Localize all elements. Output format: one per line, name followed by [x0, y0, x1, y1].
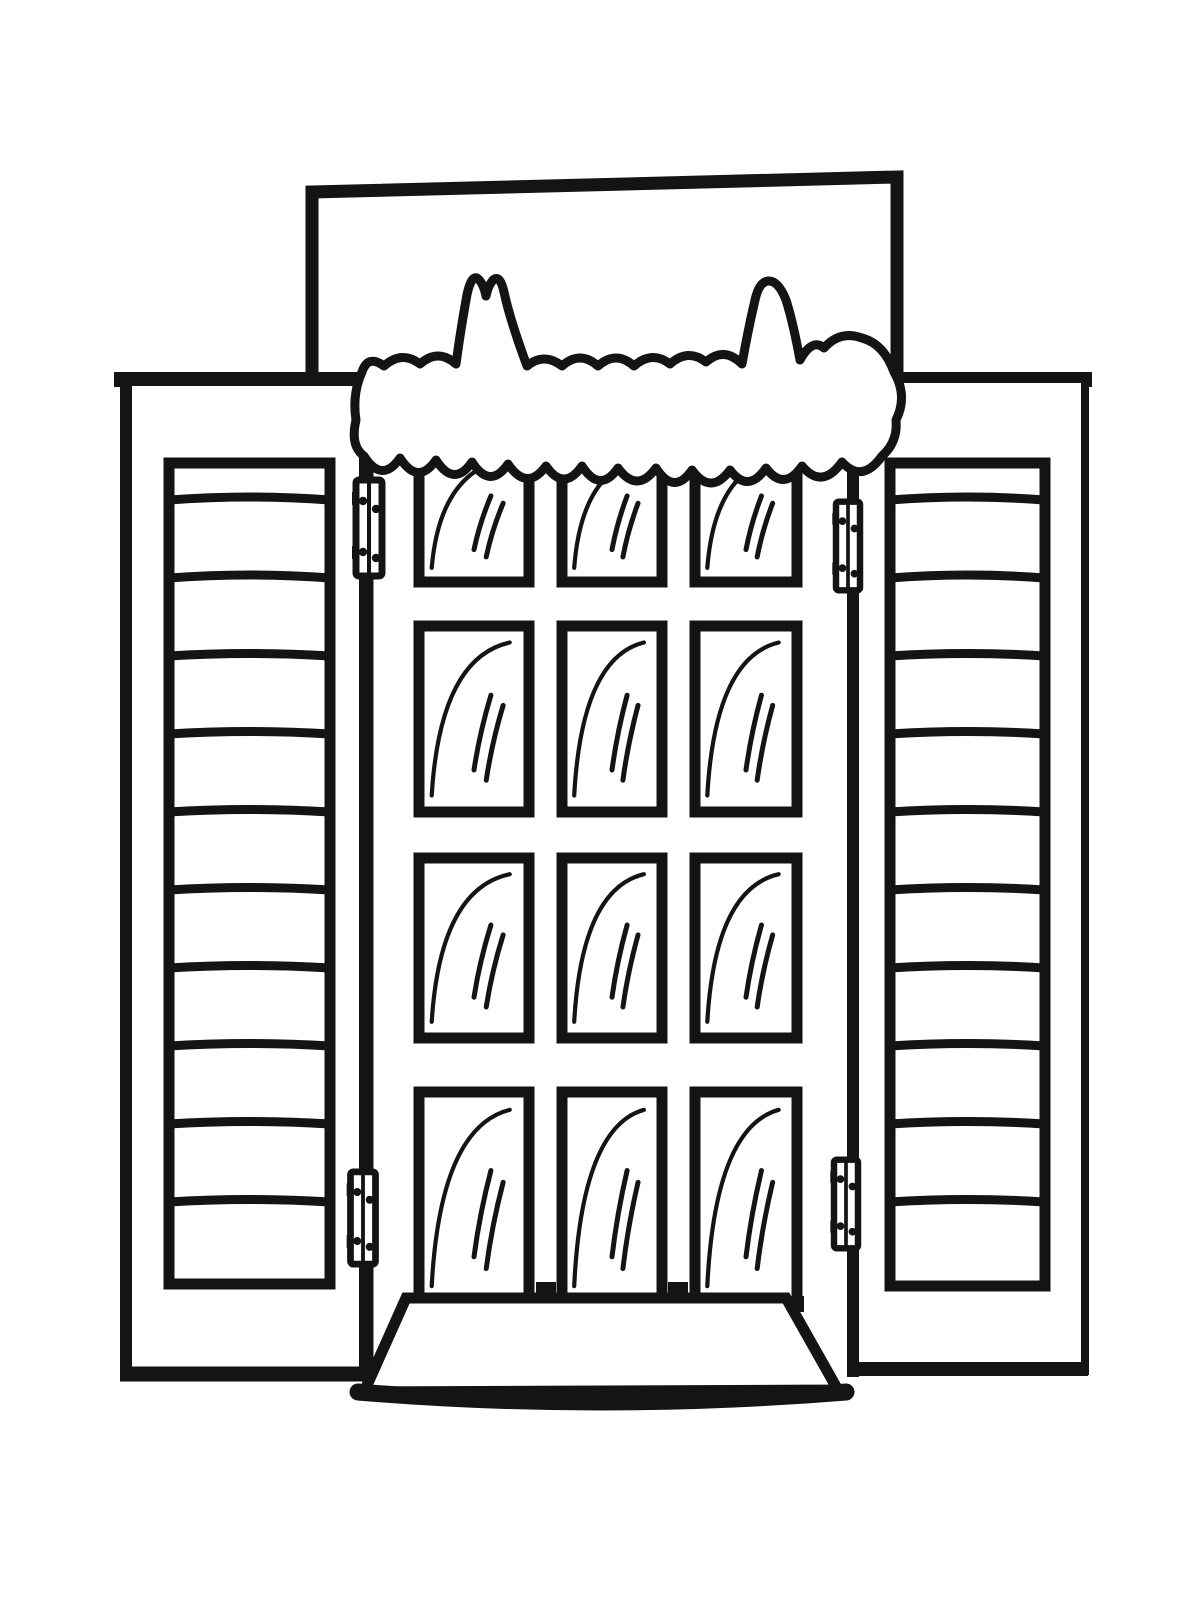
hinge-bottom-left	[347, 1172, 376, 1264]
hinge-top-right	[832, 502, 860, 591]
left-shutter-slats	[169, 463, 330, 1284]
left-shutter	[120, 380, 371, 1374]
window-pane	[419, 1092, 529, 1304]
window-pane	[562, 858, 662, 1038]
window-sill	[358, 1298, 846, 1402]
window-pane	[419, 626, 529, 812]
right-shutter	[849, 379, 1088, 1371]
hinge-top-left	[352, 480, 382, 576]
window-pane	[419, 858, 529, 1038]
window-line-art: Black and white line-art coloring page o…	[0, 0, 1200, 1600]
window-pane	[695, 1092, 797, 1304]
window-pane	[562, 626, 662, 812]
window-pane	[695, 626, 797, 812]
window-frame	[368, 382, 853, 1392]
window-pane	[695, 858, 797, 1038]
right-shutter-slats	[890, 463, 1045, 1286]
hinge-bottom-right	[830, 1160, 858, 1249]
window-pane	[562, 1092, 662, 1304]
coloring-page: Black and white line-art coloring page o…	[0, 0, 1200, 1600]
